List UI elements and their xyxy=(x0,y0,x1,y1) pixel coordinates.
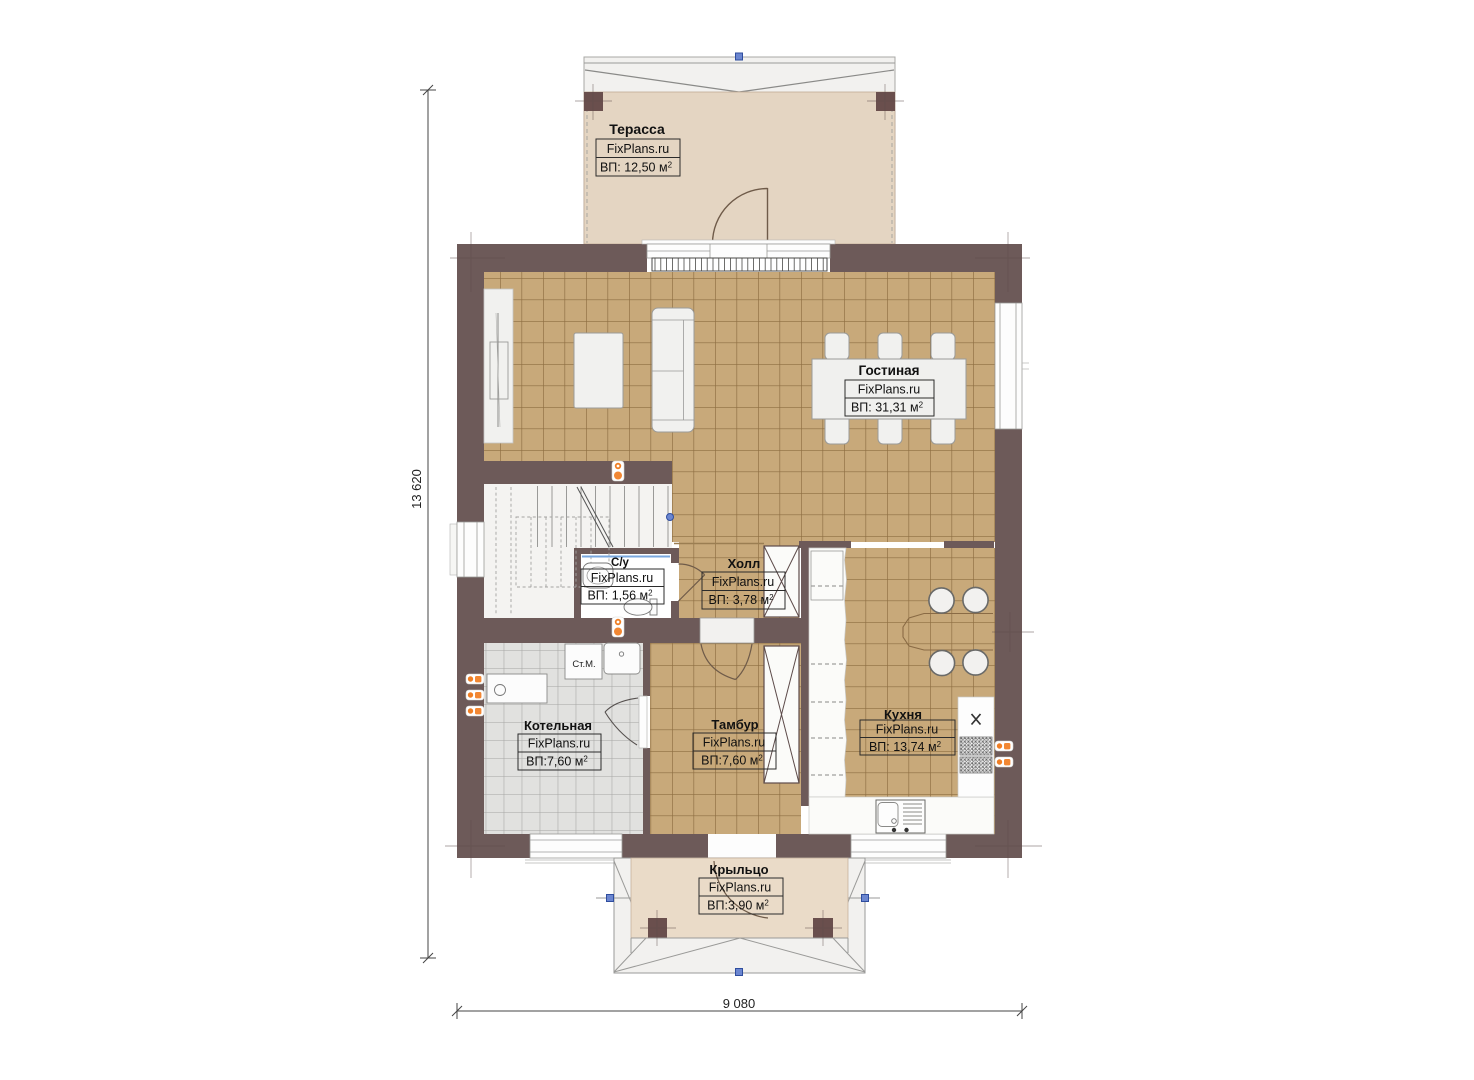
svg-text:Котельная: Котельная xyxy=(524,718,592,733)
svg-text:Холл: Холл xyxy=(728,556,761,571)
svg-text:ВП: 13,74 м2: ВП: 13,74 м2 xyxy=(869,740,942,754)
svg-text:Гостиная: Гостиная xyxy=(858,363,919,378)
svg-text:С/у: С/у xyxy=(611,557,630,569)
svg-text:ВП: 3,78 м2: ВП: 3,78 м2 xyxy=(708,593,774,607)
svg-text:ВП:3,90 м2: ВП:3,90 м2 xyxy=(707,899,769,913)
svg-text:ВП: 12,50 м2: ВП: 12,50 м2 xyxy=(600,161,673,175)
svg-text:FixPlans.ru: FixPlans.ru xyxy=(528,737,591,751)
svg-text:Крыльцо: Крыльцо xyxy=(709,862,768,877)
svg-text:FixPlans.ru: FixPlans.ru xyxy=(858,383,921,397)
svg-text:FixPlans.ru: FixPlans.ru xyxy=(703,736,766,750)
svg-text:FixPlans.ru: FixPlans.ru xyxy=(876,723,939,737)
svg-text:FixPlans.ru: FixPlans.ru xyxy=(591,571,654,585)
svg-text:9 080: 9 080 xyxy=(723,996,756,1011)
svg-text:FixPlans.ru: FixPlans.ru xyxy=(607,142,670,156)
svg-text:ВП: 31,31 м2: ВП: 31,31 м2 xyxy=(851,401,924,415)
svg-text:ВП:7,60 м2: ВП:7,60 м2 xyxy=(701,754,763,768)
svg-text:ВП: 1,56 м2: ВП: 1,56 м2 xyxy=(587,589,653,603)
svg-text:Ст.М.: Ст.М. xyxy=(572,659,595,670)
svg-text:ВП:7,60 м2: ВП:7,60 м2 xyxy=(526,755,588,769)
svg-text:FixPlans.ru: FixPlans.ru xyxy=(709,881,772,895)
svg-text:13 620: 13 620 xyxy=(409,469,424,509)
svg-text:Тамбур: Тамбур xyxy=(711,717,758,732)
svg-text:Терасса: Терасса xyxy=(609,121,665,137)
svg-text:FixPlans.ru: FixPlans.ru xyxy=(712,575,775,589)
